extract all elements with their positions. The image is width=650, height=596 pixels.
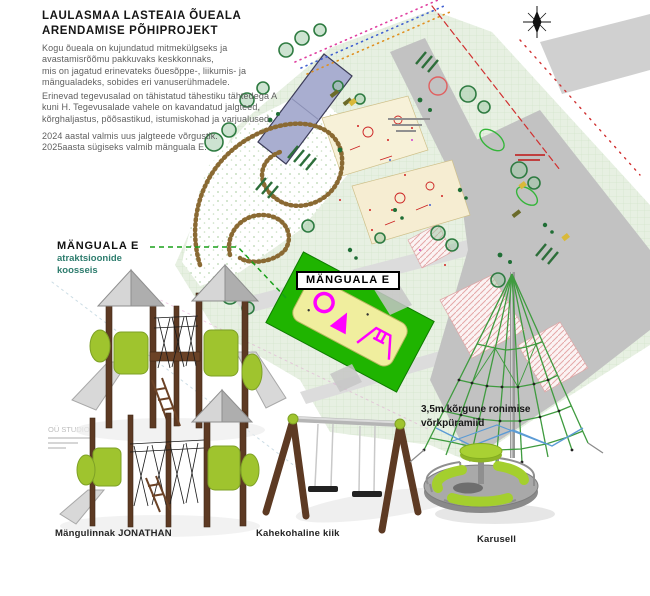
map-area-label: MÄNGUALA E (296, 271, 400, 290)
text-line: võrkpüramiid (421, 417, 530, 431)
text-line: 2024 aastal valmis uus jalgteede võrgust… (42, 131, 292, 142)
text-line: kõrghaljastus, põõsastikud, istumiskohad… (42, 114, 292, 125)
text-line: avastamisrõõmu pakkuvaks keskkonnaks, (42, 54, 292, 65)
composition-label-title: MÄNGUALA E (57, 239, 139, 253)
text-line: Erinevad tegevusalad on tähistatud tähes… (42, 91, 292, 102)
composition-label-sub: atraktsioonide (57, 253, 139, 265)
site-plan-graphic (0, 0, 650, 596)
caption-playground-tower: Mängulinnak JONATHAN (55, 528, 172, 539)
intro-paragraph-3: 2024 aastal valmis uus jalgteede võrgust… (42, 131, 292, 154)
caption-double-swing: Kahekohaline kiik (256, 528, 340, 539)
composition-label-sub: koosseis (57, 265, 139, 277)
text-line: Kogu õueala on kujundatud mitmekülgseks … (42, 43, 292, 54)
text-line: 2025aasta sügiseks valmib mänguala E. (42, 142, 292, 153)
title-line: ARENDAMISE PÕHIPROJEKT (42, 24, 282, 39)
map-road-top (540, 14, 650, 94)
text-line: mängualadeks, sobides eri vanuserühmadel… (42, 77, 292, 88)
text-line: kuni H. Tegevusalade vahele on kavandatu… (42, 102, 292, 113)
caption-carousel: Karusell (477, 534, 516, 545)
title-line: LAULASMAA LASTEAIA ÕUEALA (42, 9, 282, 24)
north-compass-icon (523, 6, 551, 38)
poster-title: LAULASMAA LASTEAIA ÕUEALA ARENDAMISE PÕH… (42, 9, 282, 39)
pyramid-caption: 3,5m kõrgune ronimise võrkpüramiid (421, 403, 530, 430)
intro-paragraph-2: Erinevad tegevusalad on tähistatud tähes… (42, 91, 292, 125)
carousel-render (424, 444, 555, 525)
intro-paragraph-1: Kogu õueala on kujundatud mitmekülgseks … (42, 43, 292, 88)
composition-label: MÄNGUALA E atraktsioonide koosseis (57, 239, 139, 277)
text-line: 3,5m kõrgune ronimise (421, 403, 530, 417)
playground-lower-unit-render (60, 390, 260, 537)
project-poster: OÜ STUDIO (0, 0, 650, 596)
text-line: mis on jagatud erinevateks õuesõppe-, li… (42, 66, 292, 77)
